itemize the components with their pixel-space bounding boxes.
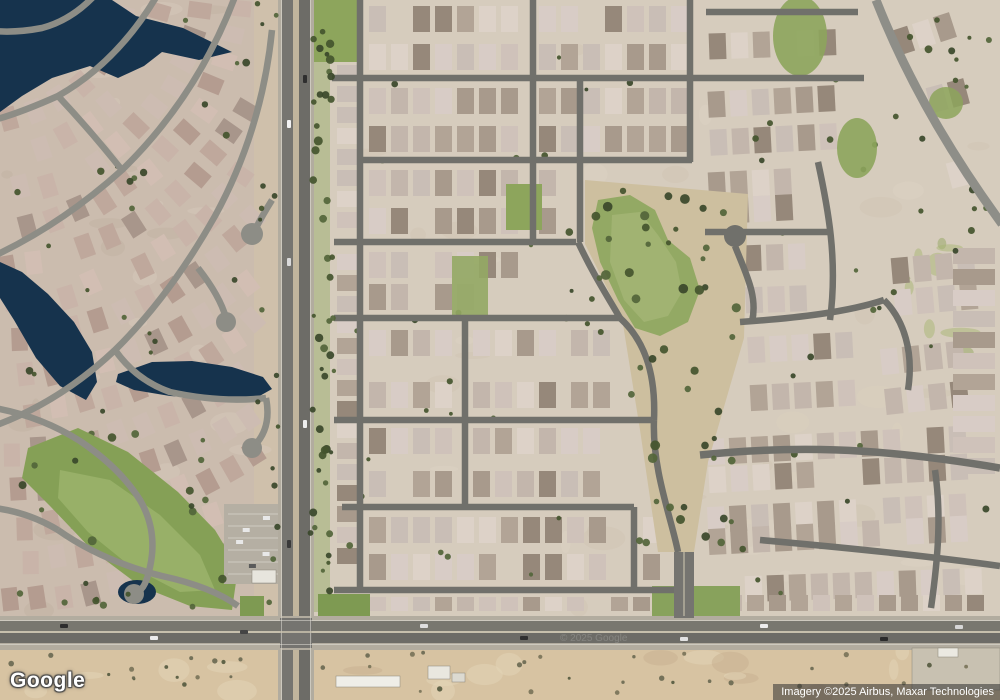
attribution-bar: Imagery ©2025 Airbus, Maxar Technologies	[773, 684, 1000, 700]
map-viewport[interactable]: © 2025 Google Google Imagery ©2025 Airbu…	[0, 0, 1000, 700]
attribution-text: Imagery ©2025 Airbus, Maxar Technologies	[781, 686, 994, 698]
satellite-map[interactable]: © 2025 Google	[0, 0, 1000, 700]
google-logo[interactable]: Google	[10, 669, 85, 693]
google-watermark: © 2025 Google	[560, 633, 628, 644]
